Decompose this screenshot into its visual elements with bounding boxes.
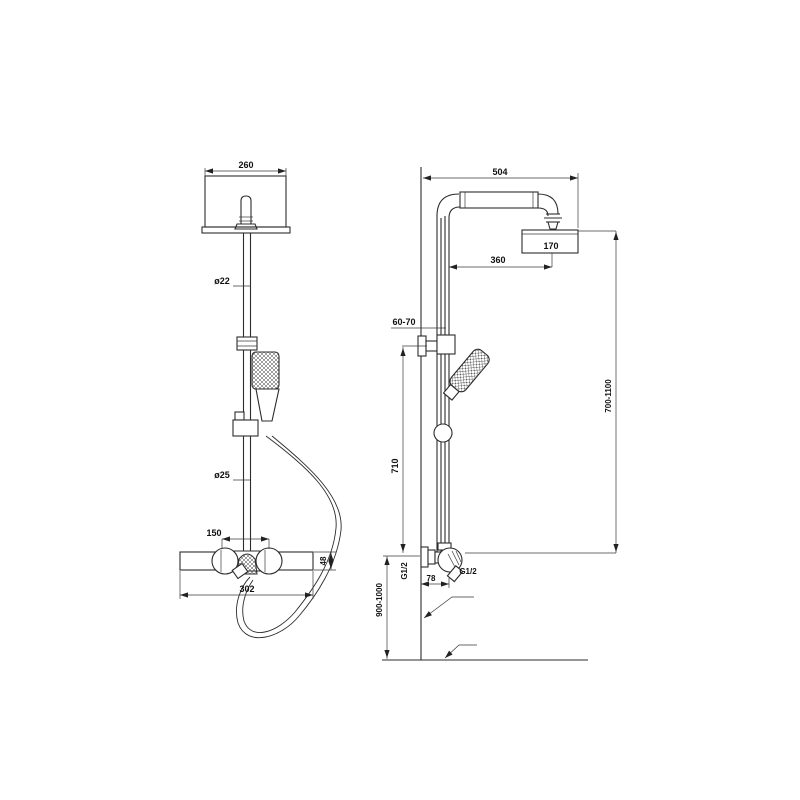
shower-system-dimension-drawing: 260 ø22 — [0, 0, 800, 800]
dim-head-depth: 170 — [543, 241, 558, 267]
arrowhead — [222, 536, 230, 541]
arrowhead — [441, 581, 449, 586]
dim-label-bracket-offset: 60-70 — [392, 317, 415, 327]
dim-outlet-offset: 78 — [421, 574, 449, 588]
dim-valve-width: 302 — [180, 571, 313, 599]
wall-bracket-side — [418, 335, 455, 356]
dim-label-slide-length: 710 — [390, 458, 400, 473]
dim-label-head-offset: 360 — [490, 255, 505, 265]
dim-bracket-offset: 60-70 — [391, 317, 446, 328]
dim-label-outlet-offset: 78 — [427, 574, 436, 583]
dim-pipe-lower-dia: ø25 — [214, 470, 251, 480]
arrowhead — [205, 168, 213, 173]
arrowhead — [400, 544, 405, 552]
slider-knob-side — [434, 424, 452, 442]
dim-label-outlet-thread: G1/2 — [459, 567, 477, 576]
overhead-shower-front — [202, 176, 290, 233]
dim-label-valve-height: 48 — [319, 556, 328, 565]
dim-label-inlet-spacing: 150 — [206, 528, 221, 538]
dim-label-valve-mount-height: 900-1000 — [375, 583, 384, 617]
dim-label-pipe-upper-dia: ø22 — [214, 276, 230, 286]
arrowhead — [421, 581, 429, 586]
mixer-valve-front — [180, 548, 313, 579]
hand-shower-front — [252, 352, 279, 421]
dim-label-reach-total: 504 — [492, 167, 507, 177]
hand-shower-side — [440, 347, 491, 403]
dim-label-valve-width: 302 — [239, 584, 254, 594]
arrowhead — [570, 175, 578, 180]
dim-label-head-depth: 170 — [543, 241, 558, 251]
side-view: 504 170 360 60-70 — [375, 167, 616, 660]
arrowhead — [384, 557, 389, 565]
arrowhead — [278, 168, 286, 173]
riser-pipe-front — [237, 233, 257, 552]
dim-inlet-spacing: 150 — [206, 528, 269, 549]
front-view: 260 ø22 — [180, 160, 341, 638]
dim-label-wall-inlet-thread: G1/2 — [400, 562, 409, 580]
dim-label-head-height-range: 700-1100 — [604, 379, 613, 413]
arrowhead — [384, 650, 389, 658]
arrowhead — [613, 232, 618, 240]
dim-label-head-width: 260 — [238, 160, 253, 170]
dim-valve-mount-height: 900-1000 — [375, 556, 420, 659]
arrowhead — [180, 592, 188, 597]
dim-head-height-range: 700-1100 — [465, 231, 616, 553]
dim-pipe-upper-dia: ø22 — [214, 276, 251, 286]
dim-head-offset: 360 — [449, 255, 552, 267]
arrowhead — [422, 611, 432, 620]
arrowhead — [423, 175, 431, 180]
shower-arm-side — [460, 192, 562, 229]
dim-head-width: 260 — [205, 160, 286, 176]
arrowhead — [449, 264, 457, 269]
arrowhead — [400, 348, 405, 356]
arrowhead — [328, 561, 333, 569]
dim-label-pipe-lower-dia: ø25 — [214, 470, 230, 480]
slider-bracket-front — [233, 412, 258, 436]
arrowhead — [613, 544, 618, 552]
arrowhead — [261, 536, 269, 541]
arrowhead — [544, 264, 552, 269]
shower-hose — [236, 436, 341, 638]
overhead-shower-side — [522, 230, 616, 253]
technical-drawing-page: 260 ø22 — [0, 0, 800, 800]
